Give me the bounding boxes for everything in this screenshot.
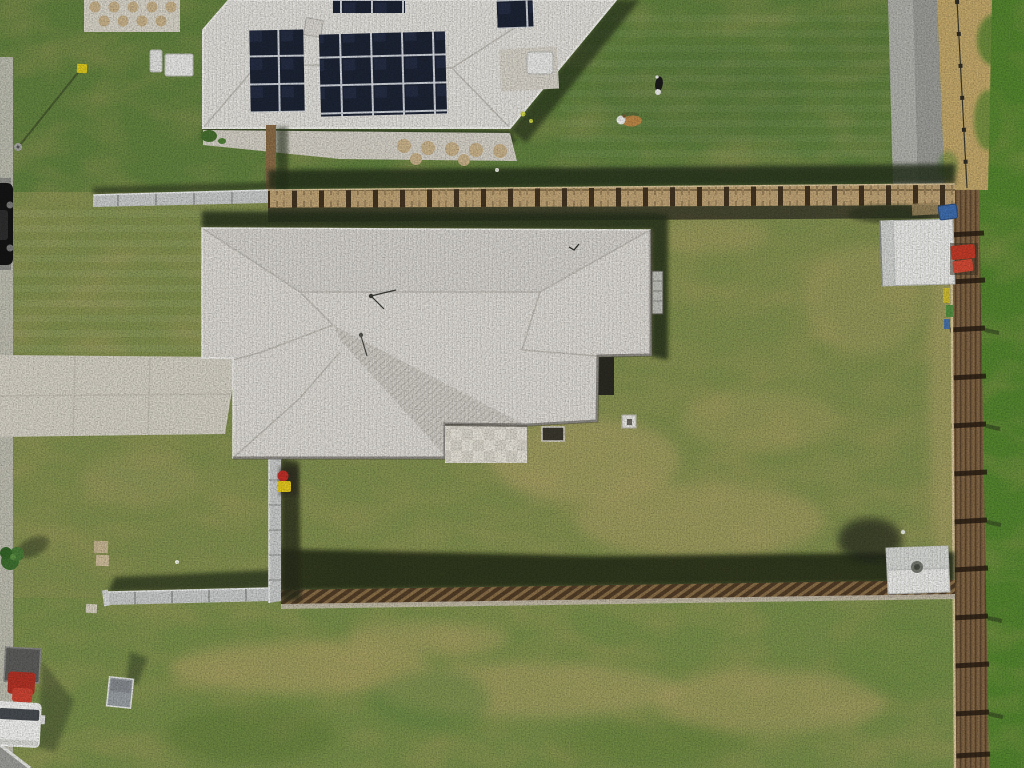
photo-grain (0, 0, 1024, 768)
aerial-photo (0, 0, 1024, 768)
aerial-photo-viewport (0, 0, 1024, 768)
